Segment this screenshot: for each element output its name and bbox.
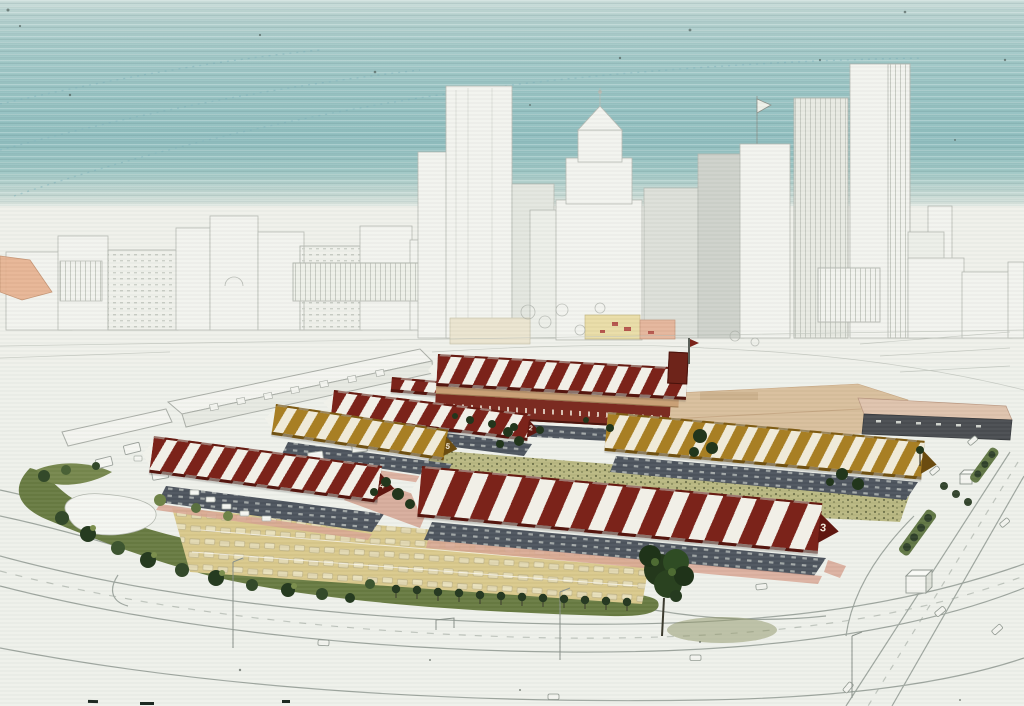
paper-specks (88, 641, 961, 705)
tree-clusters-inner (370, 413, 924, 509)
tree-row-south (392, 585, 631, 611)
big-tree (639, 545, 777, 643)
overlay-trees (0, 0, 1024, 706)
rendering-canvas: 2 5 4 3 (0, 0, 1024, 706)
tree-belt-west (38, 462, 682, 603)
